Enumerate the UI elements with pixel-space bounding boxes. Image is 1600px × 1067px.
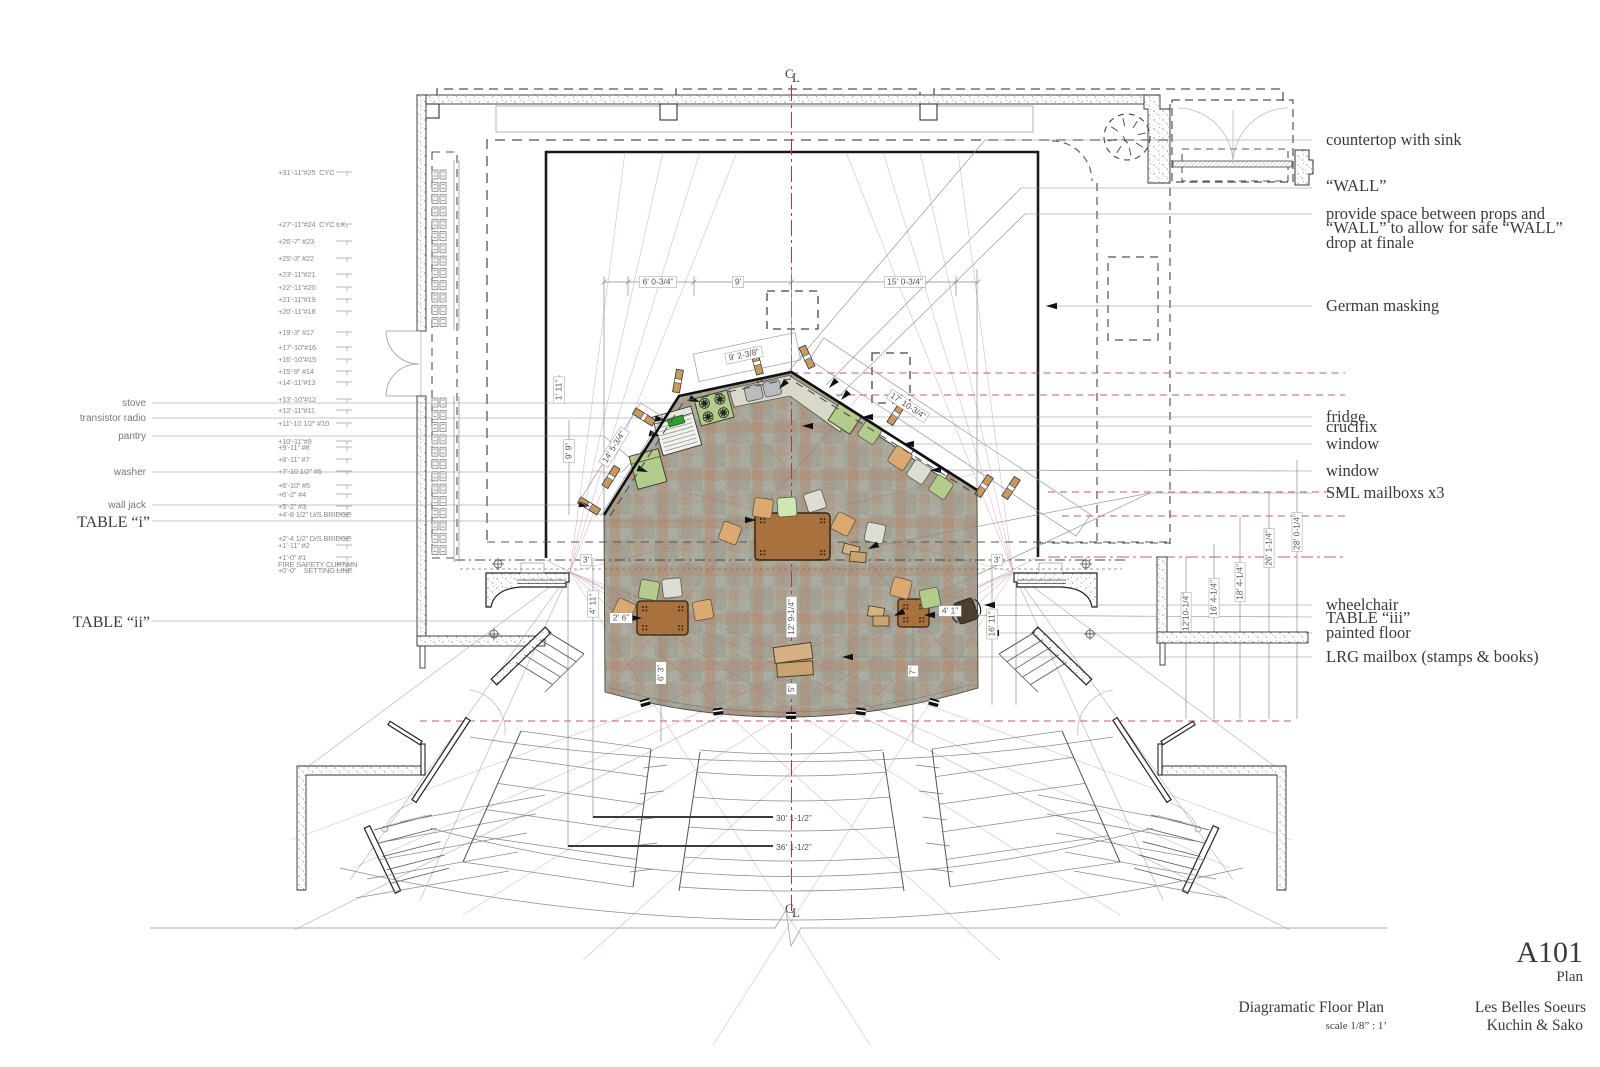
- svg-text:26' 1-1/4”: 26' 1-1/4”: [1263, 530, 1273, 566]
- svg-text:2' 6”: 2' 6”: [613, 613, 629, 623]
- svg-text:+21’-11”#19: +21’-11”#19: [278, 295, 315, 304]
- svg-text:9' 9”: 9' 9”: [564, 443, 574, 459]
- svg-text:+6’-10” #5: +6’-10” #5: [278, 481, 310, 490]
- svg-text:+15’-9” #14: +15’-9” #14: [278, 367, 314, 376]
- svg-text:+4’-8 1/2” U/S BRIDGE: +4’-8 1/2” U/S BRIDGE: [278, 510, 351, 519]
- svg-text:15' 0-3/4”: 15' 0-3/4”: [887, 277, 923, 287]
- svg-text:3': 3': [583, 555, 590, 565]
- svg-text:Kuchin & Sako: Kuchin & Sako: [1487, 1017, 1584, 1034]
- svg-text:+8’-11” #7: +8’-11” #7: [278, 455, 309, 464]
- svg-text:7”: 7”: [908, 667, 918, 675]
- svg-text:+14’-11”#13: +14’-11”#13: [278, 378, 315, 387]
- svg-text:+12’-11”#11: +12’-11”#11: [278, 406, 315, 415]
- svg-text:+22’-11”#20: +22’-11”#20: [278, 283, 315, 292]
- svg-text:12' 9-1/4”: 12' 9-1/4”: [786, 599, 796, 635]
- svg-text:A101: A101: [1516, 936, 1583, 969]
- svg-text:+0’-0” SETTING LINE: +0’-0” SETTING LINE: [278, 566, 353, 575]
- svg-text:+16’-10”#15: +16’-10”#15: [278, 355, 316, 364]
- svg-text:+27’-11”#24 CYC LX: +27’-11”#24 CYC LX: [278, 220, 345, 229]
- svg-text:+7’-10 1/2” #6: +7’-10 1/2” #6: [278, 467, 322, 476]
- svg-text:+17’-10”#16: +17’-10”#16: [278, 343, 316, 352]
- svg-text:1' 11”: 1' 11”: [554, 380, 564, 401]
- svg-text:wall jack: wall jack: [107, 500, 147, 511]
- svg-text:16' 4-1/4”: 16' 4-1/4”: [1208, 580, 1218, 616]
- svg-text:LRG mailbox (stamps & books): LRG mailbox (stamps & books): [1326, 647, 1539, 666]
- svg-text:36' 1-1/2”: 36' 1-1/2”: [776, 842, 812, 852]
- svg-text:+25’-3” #22: +25’-3” #22: [278, 254, 314, 263]
- svg-text:German masking: German masking: [1326, 296, 1439, 315]
- svg-text:+6’-2” #4: +6’-2” #4: [278, 490, 306, 499]
- svg-text:+31’-11”#25 CYC: +31’-11”#25 CYC: [278, 168, 335, 177]
- svg-text:9': 9': [735, 277, 742, 287]
- svg-text:drop at finale: drop at finale: [1326, 233, 1414, 252]
- svg-text:28' 0-1/4”: 28' 0-1/4”: [1291, 514, 1301, 550]
- svg-text:6' 0-3/4”: 6' 0-3/4”: [643, 277, 674, 287]
- svg-text:4' 1”: 4' 1”: [942, 606, 958, 616]
- svg-text:+11’-10 1/2” #10: +11’-10 1/2” #10: [278, 419, 329, 428]
- svg-text:+1’-11” #2: +1’-11” #2: [278, 541, 309, 550]
- svg-text:16' 11”: 16' 11”: [987, 611, 997, 636]
- svg-text:L: L: [792, 70, 800, 85]
- svg-text:30' 1-1/2”: 30' 1-1/2”: [776, 813, 812, 823]
- svg-text:stove: stove: [122, 398, 146, 409]
- svg-text:+9’-11” #8: +9’-11” #8: [278, 443, 309, 452]
- svg-text:18' 4-1/4”: 18' 4-1/4”: [1234, 564, 1244, 600]
- svg-text:Les Belles Soeurs: Les Belles Soeurs: [1475, 999, 1586, 1016]
- svg-text:Diagramatic Floor Plan: Diagramatic Floor Plan: [1239, 999, 1385, 1016]
- svg-text:washer: washer: [113, 467, 147, 478]
- svg-text:Plan: Plan: [1556, 969, 1583, 985]
- svg-text:4' 11”: 4' 11”: [588, 594, 598, 615]
- svg-text:window: window: [1326, 434, 1379, 453]
- svg-text:TABLE “ii”: TABLE “ii”: [73, 614, 150, 631]
- svg-text:L: L: [792, 905, 800, 920]
- svg-text:3': 3': [994, 555, 1001, 565]
- svg-text:scale 1/8” : 1’: scale 1/8” : 1’: [1326, 1020, 1387, 1032]
- svg-text:6' 3”: 6' 3”: [656, 665, 666, 681]
- svg-text:countertop with sink: countertop with sink: [1326, 130, 1462, 149]
- svg-text:pantry: pantry: [118, 431, 146, 442]
- svg-text:TABLE “i”: TABLE “i”: [77, 514, 150, 531]
- svg-text:+13’-10”#12: +13’-10”#12: [278, 395, 316, 404]
- svg-text:+19’-3” #17: +19’-3” #17: [278, 328, 314, 337]
- svg-text:SML mailboxs x3: SML mailboxs x3: [1326, 483, 1445, 502]
- svg-text:window: window: [1326, 461, 1379, 480]
- svg-text:“WALL”: “WALL”: [1326, 176, 1386, 195]
- svg-text:+23’-11”#21: +23’-11”#21: [278, 270, 315, 279]
- svg-text:+26’-7” #23: +26’-7” #23: [278, 237, 314, 246]
- svg-text:12'10-1/4”: 12'10-1/4”: [1180, 593, 1190, 631]
- svg-text:transistor radio: transistor radio: [80, 413, 147, 424]
- svg-text:painted floor: painted floor: [1326, 623, 1411, 642]
- svg-text:+20’-11”#18: +20’-11”#18: [278, 307, 315, 316]
- svg-text:5': 5': [786, 685, 796, 692]
